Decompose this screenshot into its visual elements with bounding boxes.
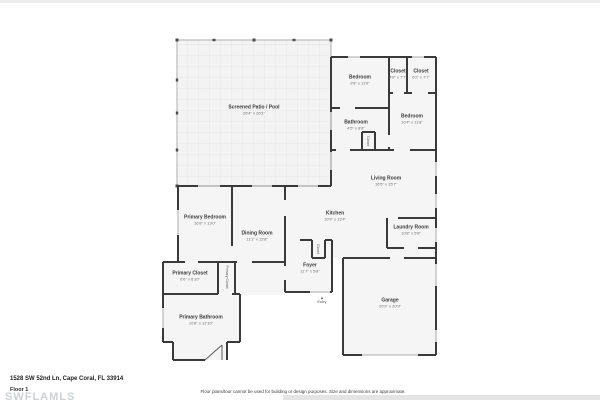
room-label-closet-bathroom: Closet [366, 136, 370, 146]
floor-plan-page: Screened Patio / Pool 26'4" x 26'1" Bedr… [0, 0, 600, 400]
room-dims: 10'4" x 11'8" [401, 120, 423, 125]
room-label-laundry-room: Laundry Room 10'8" x 5'8" [393, 224, 428, 235]
room-dims: 11'1" x 12'8" [241, 237, 272, 242]
room-dims: 6'6" x 6'10" [172, 277, 207, 282]
room-label-closet-top-left: Closet 4'8" x 7'7" [389, 68, 407, 79]
disclaimer-text: Floor plans/tour cannot be used for buil… [200, 389, 405, 394]
entry-label: Entry [317, 300, 326, 304]
room-label-living-room: Living Room 16'5" x 15'7" [371, 175, 401, 186]
room-label-primary-closet: Primary Closet 6'6" x 6'10" [172, 270, 207, 281]
room-dims: 10'9" x 13'4" [324, 217, 346, 222]
room-label-primary-bedroom: Primary Bedroom 16'8" x 13'0" [184, 214, 226, 225]
room-dims: 16'5" x 15'7" [371, 182, 401, 187]
bottom-edge-strip [283, 395, 600, 400]
room-dims: 6'2" x 7'7" [412, 75, 430, 80]
floor-plan-drawing [0, 0, 600, 400]
room-label-primary-closet-2: Primary Closet [225, 266, 229, 289]
room-label-screened-patio-pool: Screened Patio / Pool 26'4" x 26'1" [228, 104, 279, 115]
room-dims: 10'8" x 12'10" [179, 321, 223, 326]
room-label-foyer: Foyer 11'7" x 5'8" [300, 262, 319, 273]
room-label-closet-top-right: Closet 6'2" x 7'7" [412, 68, 430, 79]
room-label-bedroom-right: Bedroom 10'4" x 11'8" [401, 113, 423, 124]
room-label-kitchen: Kitchen 10'9" x 13'4" [324, 210, 346, 221]
room-label-bedroom-top: Bedroom 9'8" x 11'6" [349, 74, 371, 85]
room-label-bathroom: Bathroom 4'5" x 8'8" [344, 119, 368, 130]
room-dims: 4'8" x 7'7" [389, 75, 407, 80]
room-dims: 11'7" x 5'8" [300, 269, 319, 274]
room-dims: 9'8" x 11'6" [349, 81, 371, 86]
property-address: 1528 SW 52nd Ln, Cape Coral, FL 33914 [10, 376, 123, 382]
room-dims: 4'5" x 8'8" [344, 126, 368, 131]
room-dims: 10'8" x 5'8" [393, 231, 428, 236]
room-name: Primary Closet [225, 266, 229, 289]
room-name: Closet [366, 136, 370, 146]
room-name: Closet [316, 244, 320, 254]
room-dims: 16'8" x 13'0" [184, 221, 226, 226]
room-label-primary-bathroom: Primary Bathroom 10'8" x 12'10" [179, 314, 223, 325]
room-dims: 26'4" x 26'1" [228, 111, 279, 116]
room-label-garage: Garage 20'9" x 20'9" [379, 297, 401, 308]
room-label-closet-foyer: Closet [316, 244, 320, 254]
room-label-dining-room: Dining Room 11'1" x 12'8" [241, 230, 272, 241]
room-dims: 20'9" x 20'9" [379, 304, 401, 309]
mls-watermark: SWFLAMLS [5, 391, 75, 400]
entry-marker: ▲ Entry [317, 296, 326, 305]
